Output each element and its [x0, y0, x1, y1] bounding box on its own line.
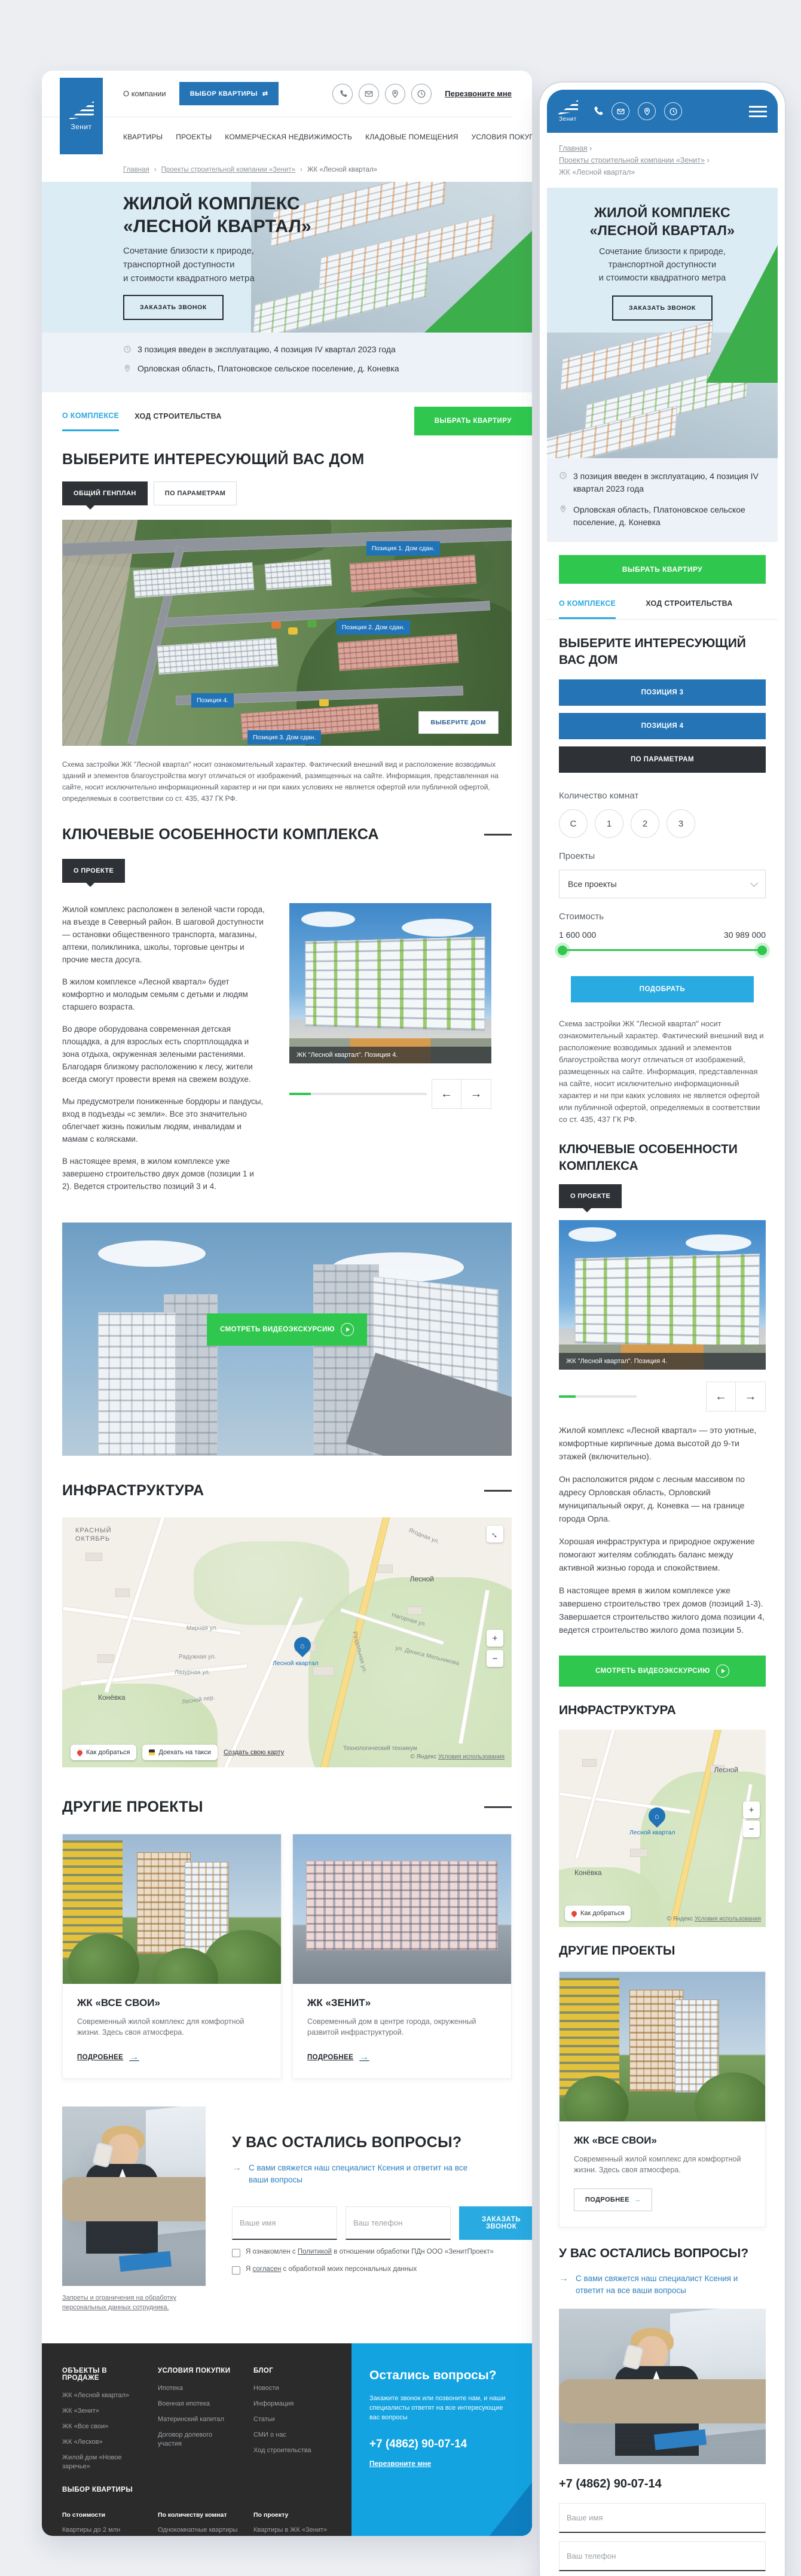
- order-call-button[interactable]: ЗАКАЗАТЬ ЗВОНОК: [123, 295, 224, 320]
- filter-icon: ⇄: [262, 90, 268, 97]
- footer-questions-text: Закажите звонок или позвоните нам, и наш…: [369, 2394, 514, 2422]
- building-pos1[interactable]: [350, 555, 477, 593]
- main-nav: КВАРТИРЫ ПРОЕКТЫ КОММЕРЧЕСКАЯ НЕДВИЖИМОС…: [42, 117, 512, 157]
- footer-link[interactable]: Жилой дом «Новое заречье»: [62, 2453, 142, 2471]
- footer-questions-panel: Остались вопросы? Закажите звонок или по…: [351, 2343, 532, 2536]
- masterplan-image[interactable]: Позиция 1. Дом сдан. Позиция 2. Дом сдан…: [62, 520, 512, 746]
- questions-subtitle: С вами свяжется наш специалист Ксения и …: [249, 2162, 483, 2186]
- phone-link[interactable]: +7 (4862) 90-07-14: [559, 2477, 766, 2491]
- genplan-toggle-button[interactable]: ОБЩИЙ ГЕНПЛАН: [62, 481, 148, 505]
- section-tabs: О КОМПЛЕКСЕ ХОД СТРОИТЕЛЬСТВА ВЫБРАТЬ КВ…: [42, 392, 532, 435]
- arrow-right-icon: →: [634, 2196, 641, 2203]
- project-image: [560, 1972, 765, 2121]
- price-slider-handle-min[interactable]: [558, 946, 567, 955]
- photo-caption-link[interactable]: Запреты и ограничения на обработку персо…: [62, 2293, 206, 2312]
- deadline-row: 3 позиция введен в эксплуатацию, 4 позиц…: [123, 345, 512, 355]
- footer-link[interactable]: ЖК «Лесков»: [62, 2438, 142, 2447]
- logo[interactable]: Зенит: [60, 78, 103, 154]
- mobile-header: Зенит: [547, 90, 778, 133]
- slider-prev-button[interactable]: ←: [706, 1382, 736, 1412]
- project-card-zenit[interactable]: ЖК «ЗЕНИТ» Современный дом в центре горо…: [292, 1834, 512, 2079]
- complex-map-pin[interactable]: ⌂: [294, 1637, 312, 1655]
- other-projects-title: ДРУГИЕ ПРОЕКТЫ: [62, 1798, 203, 1816]
- footer-link[interactable]: ЖК «Все свои»: [62, 2422, 142, 2431]
- footer-link[interactable]: Однокомнатные квартиры: [158, 2526, 238, 2535]
- footer-link[interactable]: Квартиры до 2 млн рублей: [62, 2526, 142, 2536]
- name-input[interactable]: [232, 2206, 337, 2240]
- zenit-logo-icon: [69, 101, 94, 119]
- slider-next-button[interactable]: →: [461, 1079, 491, 1109]
- footer-link[interactable]: ЖК «Лесной квартал»: [62, 2391, 142, 2400]
- footer-questions-title: Остались вопросы?: [369, 2368, 514, 2383]
- taxi-icon: [149, 1749, 155, 1755]
- slider-prev-button[interactable]: ←: [432, 1079, 461, 1109]
- projects-label: Проекты: [559, 851, 766, 861]
- footer-link[interactable]: Информация: [253, 2400, 334, 2409]
- desktop-header: Зенит О компании ВЫБОР КВАРТИРЫ ⇄: [42, 71, 532, 158]
- position-4-button[interactable]: ПОЗИЦИЯ 4: [559, 713, 766, 739]
- order-call-button[interactable]: ЗАКАЗАТЬ ЗВОНОК: [612, 295, 713, 321]
- hero-subtitle: Сочетание близости к природе, транспортн…: [559, 245, 766, 285]
- desktop-site-card: Зенит О компании ВЫБОР КВАРТИРЫ ⇄: [42, 71, 532, 2536]
- map-label-lesnoy: Лесной: [409, 1575, 434, 1583]
- watch-video-button[interactable]: СМОТРЕТЬ ВИДЕОЭКСКУРСИЮ: [559, 1656, 766, 1687]
- breadcrumb-home[interactable]: Главная: [123, 166, 149, 173]
- infrastructure-title: ИНФРАСТРУКТУРА: [547, 1687, 778, 1719]
- address-row: Орловская область, Платоновское сельское…: [123, 364, 512, 374]
- phone-icon[interactable]: [332, 84, 353, 104]
- choose-house-section: ВЫБЕРИТЕ ИНТЕРЕСУЮЩИЙ ВАС ДОМ ОБЩИЙ ГЕНП…: [42, 451, 532, 1202]
- tab-about-complex[interactable]: О КОМПЛЕКСЕ: [559, 599, 616, 619]
- footer-flats-title: ВЫБОР КВАРТИРЫ: [62, 2486, 334, 2493]
- route-button[interactable]: Как добраться: [71, 1745, 136, 1760]
- hero-section: ЖИЛОЙ КОМПЛЕКС «ЛЕСНОЙ КВАРТАЛ» Сочетани…: [42, 182, 532, 333]
- address-row: Орловская область, Платоновское сельское…: [559, 504, 766, 529]
- footer-link[interactable]: Квартиры в ЖК «Зенит»: [253, 2526, 334, 2535]
- footer-col-title: УСЛОВИЯ ПОКУПКИ: [158, 2367, 238, 2374]
- mail-icon[interactable]: [612, 102, 629, 120]
- arrow-right-icon: →: [129, 2052, 139, 2063]
- rooms-option-studio[interactable]: С: [559, 809, 588, 838]
- map-fullscreen-button[interactable]: ↔: [487, 1526, 503, 1542]
- create-map-link[interactable]: Создать свою карту: [224, 1749, 284, 1756]
- policy-checkbox-row: Я ознакомлен с Политикой в отношении обр…: [232, 2248, 532, 2257]
- building-white-3[interactable]: [157, 638, 279, 675]
- breadcrumb-current: ЖК «Лесной квартал»: [307, 166, 377, 173]
- about-project-tab[interactable]: О ПРОЕКТЕ: [62, 859, 125, 883]
- arrow-right-icon: →: [559, 2273, 568, 2297]
- price-label: Стоимость: [559, 911, 766, 922]
- breadcrumb: Главная › Проекты строительной компании …: [42, 158, 532, 182]
- clock-icon: [123, 345, 132, 355]
- genplan-label-pos1[interactable]: Позиция 1. Дом сдан.: [366, 541, 440, 556]
- price-min-value: 1 600 000: [559, 930, 596, 940]
- play-icon: [716, 1665, 729, 1678]
- questions-title: У ВАС ОСТАЛИСЬ ВОПРОСЫ?: [559, 2245, 766, 2262]
- nav-purchase-terms[interactable]: УСЛОВИЯ ПОКУПКИ: [472, 133, 532, 141]
- slider-progress: [289, 1093, 427, 1095]
- footer-link[interactable]: Договор долевого участия: [158, 2431, 238, 2449]
- breadcrumb: Главная › Проекты строительной компании …: [547, 133, 778, 188]
- tab-construction-progress[interactable]: ХОД СТРОИТЕЛЬСТВА: [646, 599, 732, 619]
- project-more-link[interactable]: ПОДРОБНЕЕ→: [77, 2052, 139, 2063]
- section-tabs: О КОМПЛЕКСЕ ХОД СТРОИТЕЛЬСТВА: [547, 584, 778, 620]
- taxi-button[interactable]: Доехать на такси: [142, 1745, 218, 1760]
- about-company-link[interactable]: О компании: [123, 89, 166, 98]
- slide-caption: ЖК "Лесной квартал". Позиция 4.: [559, 1353, 766, 1370]
- flat-filter: Количество комнат С 1 2 3 Проекты Все пр…: [547, 773, 778, 1002]
- questions-title: У ВАС ОСТАЛИСЬ ВОПРОСЫ?: [232, 2134, 532, 2151]
- building-white-2[interactable]: [265, 559, 332, 590]
- filter-submit-button[interactable]: ПОДОБРАТЬ: [571, 976, 754, 1002]
- policy-link[interactable]: Политикой: [298, 2248, 332, 2255]
- checkbox[interactable]: [232, 2249, 240, 2257]
- building-render: [305, 937, 485, 1031]
- questions-subtitle: С вами свяжется наш специалист Ксения и …: [576, 2273, 766, 2297]
- features-slider-image[interactable]: ЖК "Лесной квартал". Позиция 4.: [559, 1220, 766, 1370]
- map-label-konevka: Конёвка: [98, 1693, 126, 1702]
- map-label-krasny: КРАСНЫЙ: [75, 1527, 112, 1534]
- genplan-label-pos4[interactable]: Позиция 4.: [191, 693, 234, 708]
- price-range-slider: [562, 949, 762, 951]
- project-card-vse-svoi[interactable]: ЖК «ВСЕ СВОИ» Современный жилой комплекс…: [559, 1971, 766, 2227]
- yandex-map[interactable]: Конёвка Лесной ⌂ Лесной квартал + − Как …: [559, 1730, 766, 1927]
- project-more-link[interactable]: ПОДРОБНЕЕ→: [307, 2052, 369, 2063]
- project-card-vse-svoi[interactable]: ЖК «ВСЕ СВОИ» Современный жилой комплекс…: [62, 1834, 282, 2079]
- nav-projects[interactable]: ПРОЕКТЫ: [176, 133, 212, 141]
- clock-icon: [559, 471, 567, 483]
- project-card-desc: Современный жилой комплекс для комфортно…: [574, 2154, 751, 2178]
- rooms-option-2[interactable]: 2: [631, 809, 659, 838]
- video-tour-block: СМОТРЕТЬ ВИДЕОЭКСКУРСИЮ: [62, 1223, 512, 1456]
- footer-col-title: ОБЪЕКТЫ В ПРОДАЖЕ: [62, 2367, 142, 2382]
- price-max-value: 30 989 000: [724, 930, 766, 940]
- hamburger-menu-icon[interactable]: [749, 106, 767, 117]
- features-text: Жилой комплекс расположен в зеленой част…: [62, 903, 265, 1202]
- project-card-desc: Современный жилой комплекс для комфортно…: [77, 2016, 267, 2040]
- choose-house-title: ВЫБЕРИТЕ ИНТЕРЕСУЮЩИЙ ВАС ДОМ: [547, 620, 778, 669]
- scheme-disclaimer: Схема застройки ЖК "Лесной квартал" носи…: [62, 759, 512, 804]
- map-terms-link[interactable]: Условия использования: [438, 1754, 505, 1760]
- complex-map-pin[interactable]: ⌂: [649, 1807, 667, 1825]
- footer-link[interactable]: ЖК «Зенит»: [62, 2407, 142, 2416]
- pin-label: Лесной квартал: [273, 1660, 319, 1667]
- params-toggle-button[interactable]: ПО ПАРАМЕТРАМ: [154, 481, 237, 505]
- breadcrumb-home[interactable]: Главная: [559, 144, 588, 153]
- phone-input[interactable]: [559, 2541, 766, 2571]
- rooms-option-3[interactable]: 3: [667, 809, 695, 838]
- logo-label: Зенит: [71, 123, 91, 131]
- nav-storerooms[interactable]: КЛАДОВЫЕ ПОМЕЩЕНИЯ: [365, 133, 458, 141]
- select-flat-button[interactable]: ВЫБРАТЬ КВАРТИРУ: [414, 407, 532, 435]
- footer-col-title: БЛОГ: [253, 2367, 334, 2374]
- hero-section: ЖИЛОЙ КОМПЛЕКС «ЛЕСНОЙ КВАРТАЛ» Сочетани…: [547, 188, 778, 458]
- callback-link[interactable]: Перезвоните мне: [445, 89, 512, 98]
- slider-next-button[interactable]: →: [736, 1382, 766, 1412]
- project-card-title: ЖК «ВСЕ СВОИ»: [77, 1997, 267, 2009]
- project-more-button[interactable]: ПОДРОБНЕЕ →: [574, 2188, 652, 2211]
- questions-section: У ВАС ОСТАЛИСЬ ВОПРОСЫ? → С вами свяжетс…: [547, 2227, 778, 2576]
- footer-link[interactable]: Материнский капитал: [158, 2415, 238, 2424]
- hero-subtitle: Сочетание близости к природе, транспортн…: [123, 244, 532, 285]
- decorative-dash: [484, 834, 512, 836]
- clock-icon[interactable]: [664, 102, 682, 120]
- rooms-option-1[interactable]: 1: [595, 809, 623, 838]
- features-text: Жилой комплекс «Лесной квартал» — это ую…: [547, 1412, 778, 1636]
- phone-input[interactable]: [346, 2206, 451, 2240]
- project-card-desc: Современный дом в центре города, окружен…: [307, 2016, 497, 2040]
- map-zoom-out-button[interactable]: −: [487, 1650, 503, 1667]
- rooms-label: Количество комнат: [559, 791, 766, 801]
- select-flat-button[interactable]: ВЫБРАТЬ КВАРТИРУ: [559, 555, 766, 584]
- footer-phone[interactable]: +7 (4862) 90-07-14: [369, 2438, 514, 2451]
- params-toggle-button[interactable]: ПО ПАРАМЕТРАМ: [559, 746, 766, 773]
- breadcrumb-current: ЖК «Лесной квартал»: [559, 168, 635, 176]
- watch-video-button[interactable]: СМОТРЕТЬ ВИДЕОЭКСКУРСИЮ: [207, 1313, 367, 1346]
- breadcrumb-projects[interactable]: Проекты строительной компании «Зенит»: [559, 156, 705, 164]
- zenit-logo-icon: [558, 100, 578, 114]
- choose-house-title: ВЫБЕРИТЕ ИНТЕРЕСУЮЩИЙ ВАС ДОМ: [62, 451, 512, 468]
- map-attribution: © Яндекс Условия использования: [410, 1754, 505, 1760]
- footer-link[interactable]: Военная ипотека: [158, 2400, 238, 2409]
- complex-info-strip: 3 позиция введен в эксплуатацию, 4 позиц…: [42, 333, 532, 392]
- deadline-row: 3 позиция введен в эксплуатацию, 4 позиц…: [559, 470, 766, 495]
- tab-construction-progress[interactable]: ХОД СТРОИТЕЛЬСТВА: [134, 412, 221, 430]
- project-card-title: ЖК «ЗЕНИТ»: [307, 1997, 497, 2009]
- questions-section: Запреты и ограничения на обработку персо…: [62, 2106, 512, 2312]
- scheme-disclaimer: Схема застройки ЖК "Лесной квартал" носи…: [547, 1002, 778, 1126]
- footer-callback-link[interactable]: Перезвоните мне: [369, 2459, 431, 2468]
- location-icon[interactable]: [385, 84, 405, 104]
- clock-icon[interactable]: [411, 84, 432, 104]
- location-icon[interactable]: [638, 102, 656, 120]
- choose-flat-button[interactable]: ВЫБОР КВАРТИРЫ ⇄: [179, 82, 279, 105]
- mobile-phone-card: Зенит Главная › Проекты стро: [540, 83, 785, 2576]
- desktop-footer: ОБЪЕКТЫ В ПРОДАЖЕ ЖК «Лесной квартал» ЖК…: [42, 2343, 532, 2536]
- tab-about-complex[interactable]: О КОМПЛЕКСЕ: [62, 411, 119, 431]
- features-title: КЛЮЧЕВЫЕ ОСОБЕННОСТИ КОМПЛЕКСА: [547, 1126, 778, 1175]
- phone-icon[interactable]: [591, 105, 603, 117]
- choose-house-button[interactable]: ВЫБЕРИТЕ ДОМ: [418, 711, 499, 734]
- footer-link[interactable]: Статьи: [253, 2415, 334, 2424]
- slider-progress: [559, 1395, 637, 1398]
- projects-select[interactable]: Все проекты: [559, 870, 766, 898]
- footer-link[interactable]: Новости: [253, 2384, 334, 2393]
- arrow-right-icon: →: [359, 2052, 369, 2063]
- position-3-button[interactable]: ПОЗИЦИЯ 3: [559, 679, 766, 706]
- mail-icon[interactable]: [359, 84, 379, 104]
- page-title: ЖИЛОЙ КОМПЛЕКС «ЛЕСНОЙ КВАРТАЛ»: [559, 203, 766, 239]
- page-title: ЖИЛОЙ КОМПЛЕКС «ЛЕСНОЙ КВАРТАЛ»: [123, 193, 532, 238]
- genplan-label-pos3[interactable]: Позиция 3. Дом сдан.: [247, 730, 321, 745]
- other-projects-title: ДРУГИЕ ПРОЕКТЫ: [547, 1927, 778, 1959]
- slide-caption: ЖК "Лесной квартал". Позиция 4.: [289, 1047, 491, 1063]
- header-utility-row: О компании ВЫБОР КВАРТИРЫ ⇄ П: [42, 71, 512, 117]
- nav-flats[interactable]: КВАРТИРЫ: [123, 133, 163, 141]
- breadcrumb-projects[interactable]: Проекты строительной компании «Зенит»: [161, 166, 295, 173]
- map-label-college: Технологический техникум: [343, 1745, 417, 1752]
- map-zoom-out-button[interactable]: −: [743, 1821, 760, 1837]
- price-slider-handle-max[interactable]: [757, 946, 767, 955]
- infrastructure-title: ИНФРАСТРУКТУРА: [62, 1482, 204, 1499]
- footer-link[interactable]: Ипотека: [158, 2384, 238, 2393]
- complex-info-strip: 3 позиция введен в эксплуатацию, 4 позиц…: [547, 458, 778, 542]
- chevron-down-icon: [750, 879, 758, 887]
- nav-commercial[interactable]: КОММЕРЧЕСКАЯ НЕДВИЖИМОСТЬ: [225, 133, 352, 141]
- order-call-submit-button[interactable]: ЗАКАЗАТЬ ЗВОНОК: [459, 2206, 532, 2240]
- pin-dot-icon: [76, 1749, 84, 1757]
- manager-photo: [559, 2309, 766, 2464]
- building-render: [575, 1254, 760, 1349]
- map-zoom-in-button[interactable]: +: [487, 1630, 503, 1647]
- location-icon: [559, 504, 567, 517]
- features-slider-image[interactable]: ЖК "Лесной квартал". Позиция 4.: [289, 903, 491, 1063]
- map-zoom-in-button[interactable]: +: [743, 1801, 760, 1818]
- project-image: [293, 1834, 511, 1984]
- route-button[interactable]: Как добраться: [565, 1906, 631, 1921]
- features-title: КЛЮЧЕВЫЕ ОСОБЕННОСТИ КОМПЛЕКСА: [62, 826, 379, 843]
- yandex-map[interactable]: КРАСНЫЙ ОКТЯБРЬ Конёвка Лесной Мирная ул…: [62, 1517, 512, 1767]
- building-white-1[interactable]: [133, 562, 255, 598]
- manager-photo: [62, 2106, 206, 2286]
- play-icon: [341, 1323, 354, 1336]
- logo[interactable]: Зенит: [558, 100, 578, 123]
- location-icon: [123, 364, 132, 374]
- consent-link[interactable]: согласен: [253, 2266, 282, 2273]
- genplan-label-pos2[interactable]: Позиция 2. Дом сдан.: [337, 620, 410, 635]
- checkbox[interactable]: [232, 2266, 240, 2275]
- project-card-title: ЖК «ВСЕ СВОИ»: [574, 2135, 751, 2147]
- about-project-tab[interactable]: О ПРОЕКТЕ: [559, 1184, 622, 1208]
- arrow-right-icon: →: [232, 2162, 241, 2186]
- footer-link[interactable]: Ход строительства: [253, 2446, 334, 2455]
- project-image: [63, 1834, 281, 1984]
- footer-link[interactable]: СМИ о нас: [253, 2431, 334, 2440]
- screenshot-canvas: Зенит О компании ВЫБОР КВАРТИРЫ ⇄: [0, 0, 801, 2576]
- name-input[interactable]: [559, 2503, 766, 2533]
- map-terms-link[interactable]: Условия использования: [695, 1916, 761, 1922]
- consent-checkbox-row: Я согласен с обработкой моих персональны…: [232, 2266, 532, 2275]
